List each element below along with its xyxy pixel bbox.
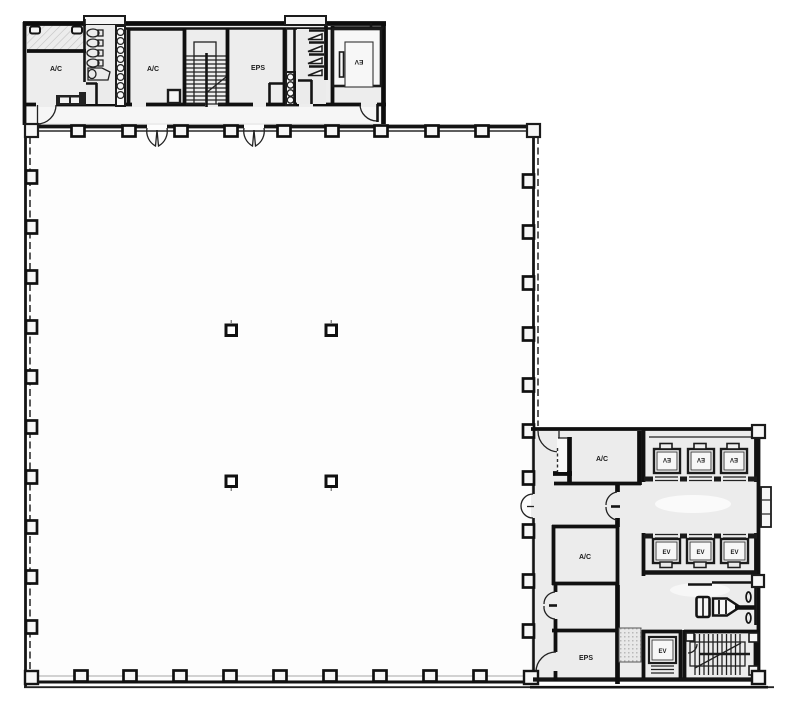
svg-text:EV: EV bbox=[730, 550, 738, 556]
svg-text:EV: EV bbox=[662, 550, 670, 556]
svg-text:EPS: EPS bbox=[251, 65, 265, 72]
svg-text:EV: EV bbox=[354, 58, 363, 65]
svg-text:EV: EV bbox=[696, 550, 704, 556]
svg-text:EV: EV bbox=[658, 649, 666, 655]
svg-text:EPS: EPS bbox=[579, 655, 593, 662]
svg-text:A/C: A/C bbox=[147, 66, 159, 73]
svg-text:EV: EV bbox=[663, 456, 671, 462]
svg-text:EV: EV bbox=[730, 456, 738, 462]
svg-text:EV: EV bbox=[697, 456, 705, 462]
svg-text:A/C: A/C bbox=[596, 456, 608, 463]
svg-text:A/C: A/C bbox=[579, 554, 591, 561]
svg-text:A/C: A/C bbox=[50, 66, 62, 73]
